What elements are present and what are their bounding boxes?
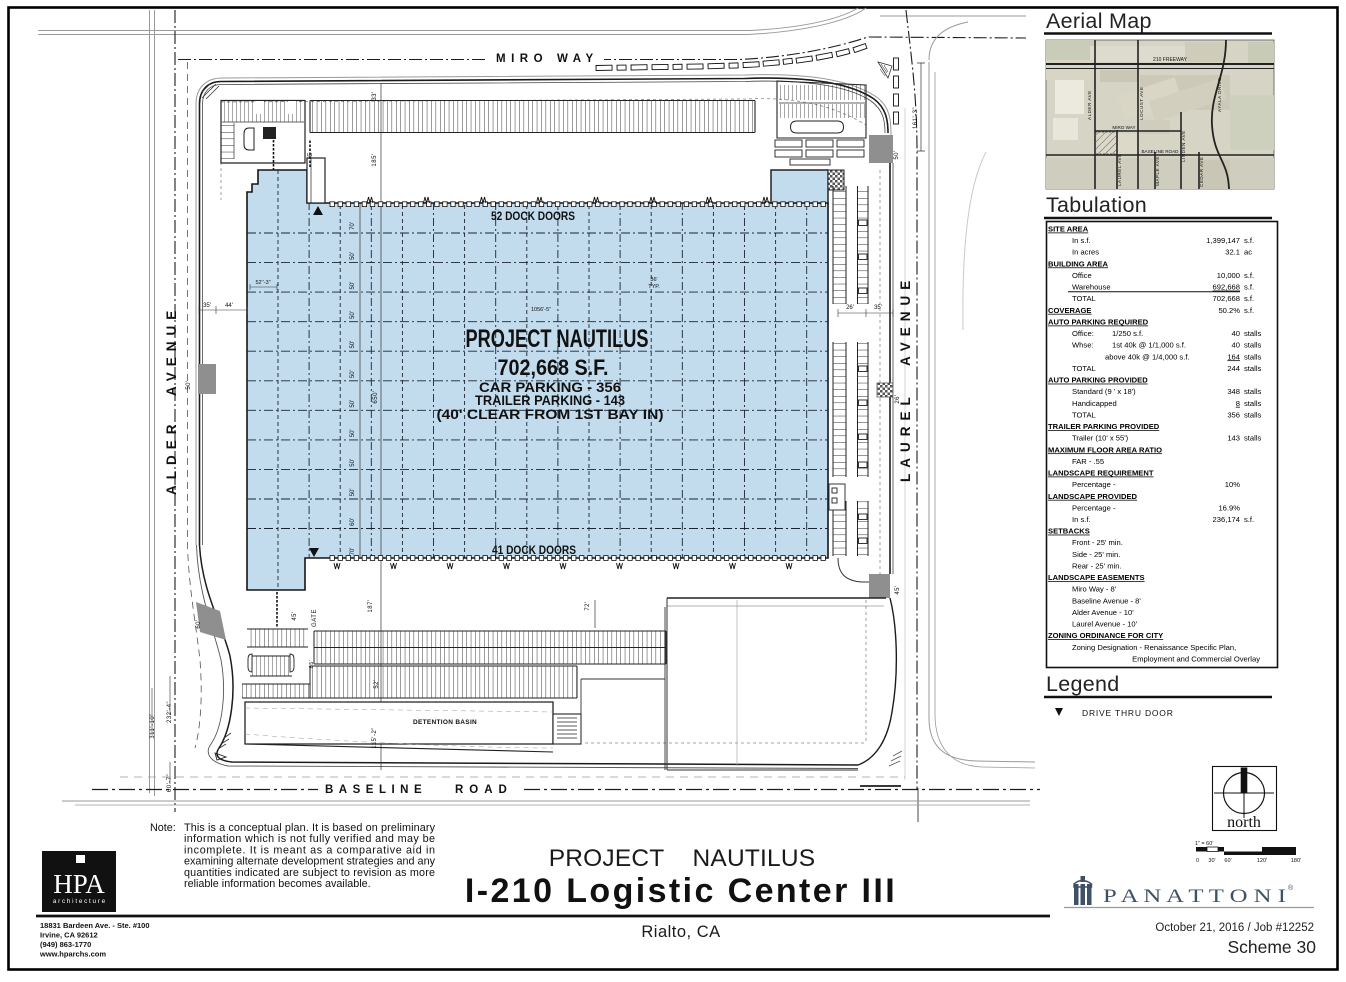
svg-text:LANDSCAPE EASEMENTS: LANDSCAPE EASEMENTS bbox=[1048, 573, 1145, 582]
svg-text:SETBACKS: SETBACKS bbox=[1048, 527, 1090, 536]
svg-text:Aerial Map: Aerial Map bbox=[1046, 9, 1152, 33]
svg-text:LOCUST AVE: LOCUST AVE bbox=[1139, 87, 1144, 120]
svg-text:16.9%: 16.9% bbox=[1218, 503, 1240, 512]
svg-text:This is a conceptual plan.: This is a conceptual plan. It is based o… bbox=[184, 822, 436, 834]
svg-text:(40' CLEAR FROM 1ST BAY IN): (40' CLEAR FROM 1ST BAY IN) bbox=[437, 406, 664, 422]
svg-text:north: north bbox=[1227, 814, 1261, 831]
svg-text:incomplete. It is meant as: incomplete. It is meant as a comparative… bbox=[184, 844, 435, 856]
svg-text:50': 50' bbox=[350, 311, 356, 319]
svg-text:30': 30' bbox=[1208, 858, 1215, 864]
svg-text:Standard (9 ' x 18'): Standard (9 ' x 18') bbox=[1072, 387, 1136, 396]
svg-text:TOTAL: TOTAL bbox=[1072, 294, 1096, 303]
svg-text:BUILDING AREA: BUILDING AREA bbox=[1048, 259, 1109, 268]
svg-text:161'-3”: 161'-3” bbox=[913, 107, 919, 129]
svg-text:COVERAGE: COVERAGE bbox=[1048, 306, 1091, 315]
svg-text:26': 26' bbox=[895, 394, 901, 403]
svg-text:FAR - .55: FAR - .55 bbox=[1072, 457, 1104, 466]
svg-text:40: 40 bbox=[1232, 329, 1240, 338]
svg-text:PROJECT NAUTILUS: PROJECT NAUTILUS bbox=[549, 845, 816, 872]
svg-text:LANDSCAPE PROVIDED: LANDSCAPE PROVIDED bbox=[1048, 492, 1138, 501]
svg-text:(949) 863-1770: (949) 863-1770 bbox=[40, 940, 91, 949]
svg-text:Alder Avenue - 10': Alder Avenue - 10' bbox=[1072, 608, 1134, 617]
svg-text:52': 52' bbox=[374, 679, 380, 688]
svg-text:MIRO WAY: MIRO WAY bbox=[1112, 125, 1135, 130]
svg-text:187': 187' bbox=[368, 599, 374, 612]
svg-text:DETENTION BASIN: DETENTION BASIN bbox=[413, 719, 477, 726]
svg-text:DRIVE THRU DOOR: DRIVE THRU DOOR bbox=[1082, 708, 1174, 718]
svg-text:60': 60' bbox=[1224, 858, 1231, 864]
svg-text:41 DOCK DOORS: 41 DOCK DOORS bbox=[492, 545, 576, 557]
svg-text:BASELINE ROAD: BASELINE ROAD bbox=[1141, 149, 1179, 154]
svg-text:10,000: 10,000 bbox=[1217, 271, 1240, 280]
svg-text:s.f.: s.f. bbox=[1244, 294, 1254, 303]
svg-text:TYP.: TYP. bbox=[648, 284, 660, 290]
svg-text:ZONING ORDINANCE FOR CITY: ZONING ORDINANCE FOR CITY bbox=[1048, 631, 1163, 640]
svg-text:s.f.: s.f. bbox=[1244, 283, 1254, 292]
svg-text:120': 120' bbox=[1257, 858, 1267, 864]
svg-text:Laurel Avenue - 10': Laurel Avenue - 10' bbox=[1072, 620, 1138, 629]
svg-text:Percentage -: Percentage - bbox=[1072, 503, 1116, 512]
svg-text:above 40k @ 1/4,000 s.f.: above 40k @ 1/4,000 s.f. bbox=[1105, 352, 1190, 361]
svg-text:0: 0 bbox=[1196, 858, 1199, 864]
svg-text:MAXIMUM FLOOR AREA RATIO: MAXIMUM FLOOR AREA RATIO bbox=[1048, 445, 1162, 454]
svg-text:65': 65' bbox=[309, 660, 315, 669]
svg-text:ac: ac bbox=[1244, 248, 1252, 257]
svg-text:AUTO PARKING PROVIDED: AUTO PARKING PROVIDED bbox=[1048, 376, 1148, 385]
svg-text:143: 143 bbox=[1227, 434, 1240, 443]
svg-text:348: 348 bbox=[1227, 387, 1240, 396]
svg-text:72': 72' bbox=[585, 601, 591, 610]
svg-text:Side - 25' min.: Side - 25' min. bbox=[1072, 550, 1120, 559]
svg-text:36': 36' bbox=[650, 277, 657, 283]
svg-text:50': 50' bbox=[350, 488, 356, 496]
svg-text:Trailer (10' x 55'): Trailer (10' x 55') bbox=[1072, 434, 1129, 443]
svg-text:115'-2”: 115'-2” bbox=[372, 727, 378, 749]
svg-text:AVENUE: AVENUE bbox=[898, 275, 913, 366]
svg-text:Legend: Legend bbox=[1046, 672, 1120, 696]
svg-text:LAUREL AVE: LAUREL AVE bbox=[1117, 153, 1122, 186]
svg-text:ALDER: ALDER bbox=[164, 419, 179, 496]
svg-text:AVENUE: AVENUE bbox=[164, 305, 179, 396]
svg-text:reliable information becomes: reliable information becomes available. bbox=[184, 878, 371, 890]
svg-text:stalls: stalls bbox=[1244, 352, 1262, 361]
svg-text:®: ® bbox=[1288, 884, 1294, 892]
svg-text:stalls: stalls bbox=[1244, 387, 1262, 396]
svg-text:40: 40 bbox=[1232, 341, 1240, 350]
svg-text:PROJECT NAUTILUS: PROJECT NAUTILUS bbox=[466, 325, 649, 353]
svg-text:185': 185' bbox=[372, 153, 378, 166]
svg-text:26': 26' bbox=[846, 305, 854, 311]
svg-text:1056'-5”: 1056'-5” bbox=[531, 307, 551, 313]
svg-text:Irvine, CA 92612: Irvine, CA 92612 bbox=[40, 931, 98, 940]
svg-text:WAY: WAY bbox=[557, 53, 599, 65]
svg-text:Scheme 30: Scheme 30 bbox=[1227, 937, 1316, 957]
svg-text:I-210 Logistic Center III: I-210 Logistic Center III bbox=[465, 872, 897, 910]
svg-text:stalls: stalls bbox=[1244, 364, 1262, 373]
svg-text:TOTAL: TOTAL bbox=[1072, 364, 1096, 373]
svg-text:18831 Bardeen Ave. - Ste. #100: 18831 Bardeen Ave. - Ste. #100 bbox=[40, 921, 150, 930]
svg-text:s.f.: s.f. bbox=[1244, 306, 1254, 315]
svg-text:stalls: stalls bbox=[1244, 410, 1262, 419]
svg-text:50': 50' bbox=[186, 380, 192, 389]
svg-text:356: 356 bbox=[1227, 410, 1240, 419]
svg-text:Front - 25' min.: Front - 25' min. bbox=[1072, 538, 1123, 547]
svg-text:44': 44' bbox=[225, 303, 233, 309]
svg-text:LANDSCAPE REQUIREMENT: LANDSCAPE REQUIREMENT bbox=[1048, 469, 1154, 478]
svg-text:ROAD: ROAD bbox=[455, 784, 513, 796]
svg-text:35': 35' bbox=[874, 305, 882, 311]
svg-text:quantities indicated are su: quantities indicated are subject to revi… bbox=[184, 867, 435, 879]
svg-text:ALDER AVE: ALDER AVE bbox=[1087, 90, 1092, 120]
svg-text:stalls: stalls bbox=[1244, 399, 1262, 408]
svg-text:236,174: 236,174 bbox=[1213, 515, 1240, 524]
svg-text:AYALA DRIVE: AYALA DRIVE bbox=[1217, 77, 1222, 112]
svg-text:Zoning Designation - Renaissan: Zoning Designation - Renaissance Specifi… bbox=[1072, 643, 1236, 652]
svg-text:70': 70' bbox=[350, 222, 356, 230]
svg-text:Warehouse: Warehouse bbox=[1072, 283, 1111, 292]
svg-text:In acres: In acres bbox=[1072, 248, 1099, 257]
svg-text:164: 164 bbox=[1227, 352, 1240, 361]
svg-text:244: 244 bbox=[1227, 364, 1240, 373]
svg-text:50': 50' bbox=[350, 370, 356, 378]
svg-text:33': 33' bbox=[372, 91, 378, 100]
svg-text:TRAILER PARKING PROVIDED: TRAILER PARKING PROVIDED bbox=[1048, 422, 1160, 431]
svg-text:www.hparchs.com: www.hparchs.com bbox=[39, 950, 106, 959]
svg-text:35': 35' bbox=[203, 303, 211, 309]
svg-text:Percentage -: Percentage - bbox=[1072, 480, 1116, 489]
svg-text:In s.f.: In s.f. bbox=[1072, 515, 1091, 524]
svg-text:stalls: stalls bbox=[1244, 329, 1262, 338]
svg-text:50': 50' bbox=[350, 459, 356, 467]
svg-text:BASELINE: BASELINE bbox=[325, 784, 427, 796]
svg-text:s.f.: s.f. bbox=[1244, 271, 1254, 280]
svg-text:311'-10”: 311'-10” bbox=[150, 713, 156, 738]
svg-text:1st 40k @ 1/1,000 s.f.: 1st 40k @ 1/1,000 s.f. bbox=[1112, 341, 1186, 350]
svg-text:stalls: stalls bbox=[1244, 341, 1262, 350]
svg-text:1/250 s.f.: 1/250 s.f. bbox=[1112, 329, 1143, 338]
svg-text:692,668: 692,668 bbox=[1213, 283, 1240, 292]
svg-text:LINDEN AVE: LINDEN AVE bbox=[1181, 130, 1186, 162]
svg-text:In s.f.: In s.f. bbox=[1072, 236, 1091, 245]
svg-text:45': 45' bbox=[292, 611, 298, 620]
svg-text:Rialto, CA: Rialto, CA bbox=[641, 923, 720, 941]
svg-text:s.f.: s.f. bbox=[1244, 236, 1254, 245]
svg-text:50': 50' bbox=[350, 400, 356, 408]
svg-text:702,668: 702,668 bbox=[1213, 294, 1240, 303]
svg-text:8: 8 bbox=[1236, 399, 1240, 408]
svg-text:GATE: GATE bbox=[312, 609, 318, 627]
svg-text:P A N A T T O N I: P A N A T T O N I bbox=[1103, 886, 1286, 907]
svg-text:702,668 S.F.: 702,668 S.F. bbox=[498, 355, 609, 380]
svg-text:180': 180' bbox=[1291, 858, 1301, 864]
svg-text:1” = 60’: 1” = 60’ bbox=[1195, 841, 1214, 847]
svg-text:Employment and Commercial Over: Employment and Commercial Overlay bbox=[1132, 654, 1260, 663]
svg-text:CEDAR AVE: CEDAR AVE bbox=[1199, 157, 1204, 187]
svg-text:50': 50' bbox=[350, 341, 356, 349]
svg-text:70': 70' bbox=[350, 548, 356, 556]
svg-text:32.1: 32.1 bbox=[1225, 248, 1240, 257]
svg-text:Office:: Office: bbox=[1072, 329, 1094, 338]
svg-text:MIRO: MIRO bbox=[496, 53, 548, 65]
svg-text:Office: Office bbox=[1072, 271, 1092, 280]
svg-text:October 21, 2016 / Job #12252: October 21, 2016 / Job #12252 bbox=[1155, 922, 1314, 934]
svg-text:50': 50' bbox=[350, 282, 356, 290]
svg-text:52'’-3”: 52'’-3” bbox=[255, 280, 270, 286]
svg-text:MAPLE AVE: MAPLE AVE bbox=[1155, 156, 1160, 186]
svg-text:TOTAL: TOTAL bbox=[1072, 410, 1096, 419]
svg-text:Baseline Avenue - 8': Baseline Avenue - 8' bbox=[1072, 596, 1141, 605]
svg-text:Note:: Note: bbox=[150, 822, 176, 834]
svg-text:650': 650' bbox=[373, 390, 379, 403]
svg-text:50.2%: 50.2% bbox=[1218, 306, 1240, 315]
svg-text:Handicapped: Handicapped bbox=[1072, 399, 1117, 408]
svg-text:s.f.: s.f. bbox=[1244, 515, 1254, 524]
svg-text:50': 50' bbox=[350, 429, 356, 437]
svg-text:60': 60' bbox=[350, 518, 356, 526]
svg-text:stalls: stalls bbox=[1244, 434, 1262, 443]
svg-text:Tabulation: Tabulation bbox=[1046, 193, 1147, 217]
svg-text:52 DOCK DOORS: 52 DOCK DOORS bbox=[491, 211, 575, 223]
svg-text:10%: 10% bbox=[1225, 480, 1240, 489]
svg-text:50': 50' bbox=[894, 150, 900, 159]
svg-text:SITE AREA: SITE AREA bbox=[1048, 225, 1089, 234]
svg-text:information which is not f: information which is not fully verified … bbox=[184, 833, 435, 845]
svg-text:210 FREEWAY: 210 FREEWAY bbox=[1153, 57, 1188, 63]
svg-text:a r c h i t e c t u r e: a r c h i t e c t u r e bbox=[53, 898, 106, 905]
svg-text:Whse:: Whse: bbox=[1072, 341, 1094, 350]
svg-text:AUTO PARKING REQUIRED: AUTO PARKING REQUIRED bbox=[1048, 318, 1149, 327]
svg-text:Rear - 25' min.: Rear - 25' min. bbox=[1072, 562, 1122, 571]
svg-text:60': 60' bbox=[196, 619, 202, 628]
svg-text:examining alternate developm: examining alternate development strategi… bbox=[184, 856, 436, 868]
svg-text:HPA: HPA bbox=[53, 869, 105, 899]
svg-text:Miro Way - 8': Miro Way - 8' bbox=[1072, 585, 1117, 594]
svg-text:LAUREL: LAUREL bbox=[898, 391, 913, 482]
svg-text:45': 45' bbox=[895, 585, 901, 594]
svg-text:1,399,147: 1,399,147 bbox=[1206, 236, 1240, 245]
svg-text:50': 50' bbox=[350, 252, 356, 260]
